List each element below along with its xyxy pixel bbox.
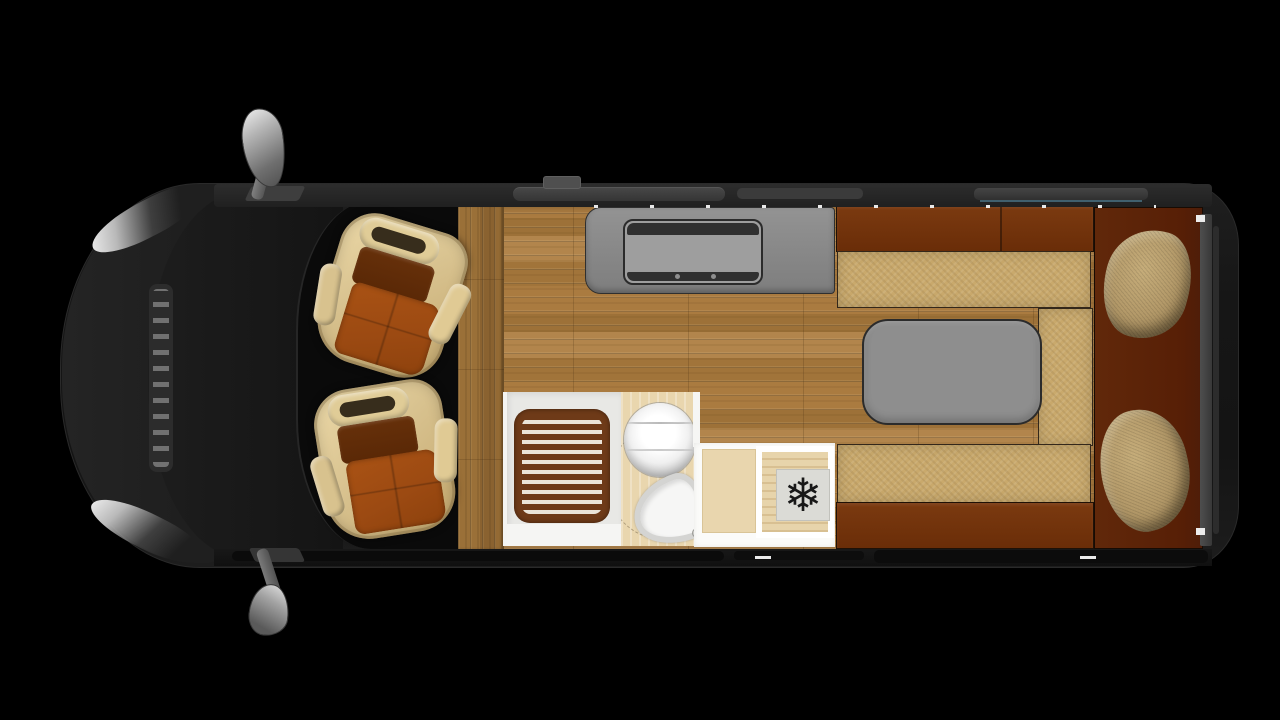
trim-dots-row bbox=[594, 205, 1156, 208]
cooktop-hinge-dot bbox=[675, 274, 680, 279]
shower-mat-slats bbox=[522, 418, 602, 514]
toilet bbox=[624, 403, 696, 477]
bed-pillow-bottom bbox=[1088, 401, 1201, 540]
dinette-table bbox=[862, 319, 1042, 425]
rear-hinge-mark bbox=[1196, 215, 1205, 222]
fridge-vent-plate: ❄ bbox=[776, 469, 830, 521]
passenger-seat bbox=[309, 375, 461, 545]
cooktop-trim-bottom bbox=[627, 272, 759, 281]
roof-vent bbox=[543, 176, 581, 189]
dinette-cushion-bottom bbox=[837, 444, 1091, 503]
sill-segment bbox=[232, 551, 724, 561]
sliding-door-rail bbox=[513, 187, 725, 201]
rear-bed bbox=[1094, 207, 1203, 549]
utility-counter: ❄ bbox=[694, 443, 835, 547]
side-mirror-bottom bbox=[246, 582, 291, 638]
sill-segment bbox=[734, 551, 864, 560]
roof-rail-bar bbox=[737, 188, 863, 199]
front-grille bbox=[149, 284, 173, 472]
rear-hinge-mark bbox=[1196, 528, 1205, 535]
rocker-rail-bottom bbox=[214, 549, 1212, 566]
kitchen-counter bbox=[585, 207, 835, 294]
cabinet-panel bbox=[702, 449, 756, 533]
sill-segment bbox=[874, 550, 1208, 563]
shower-mat bbox=[514, 409, 610, 523]
snowflake-icon: ❄ bbox=[784, 472, 823, 518]
shower-tray-lip bbox=[507, 524, 625, 546]
dinette-base-bottom bbox=[836, 502, 1094, 549]
cooktop-hinge-dot bbox=[711, 274, 716, 279]
sill-mark bbox=[755, 556, 771, 559]
toilet-lid-seam bbox=[627, 422, 693, 424]
bed-pillow-top bbox=[1091, 220, 1203, 349]
fridge-top: ❄ bbox=[762, 452, 828, 532]
dinette-cushion-top bbox=[837, 251, 1091, 308]
rail-accent-line bbox=[980, 200, 1142, 202]
rear-door-strip bbox=[1200, 214, 1212, 546]
floorplan-canvas: ❄ bbox=[0, 0, 1280, 720]
roof-rail-bar bbox=[974, 188, 1148, 200]
dinette-cushion-right bbox=[1038, 308, 1093, 446]
cooktop-cover bbox=[623, 219, 763, 285]
bathroom-wall bbox=[693, 392, 700, 447]
headrest-slot bbox=[339, 395, 397, 419]
cooktop-trim-top bbox=[627, 223, 759, 235]
fridge: ❄ bbox=[756, 446, 834, 538]
side-mirror-top bbox=[238, 105, 291, 190]
grille-slats bbox=[153, 289, 169, 467]
dinette-backrest-seam bbox=[1000, 206, 1002, 251]
roof-rail-top bbox=[214, 184, 1212, 207]
seat-cushion bbox=[345, 448, 447, 535]
dinette-backrest-top bbox=[836, 205, 1094, 252]
rear-door-edge bbox=[1213, 226, 1219, 534]
sill-mark bbox=[1080, 556, 1096, 559]
toilet-lid-seam bbox=[627, 449, 693, 451]
seat-armrest-right bbox=[434, 418, 458, 482]
